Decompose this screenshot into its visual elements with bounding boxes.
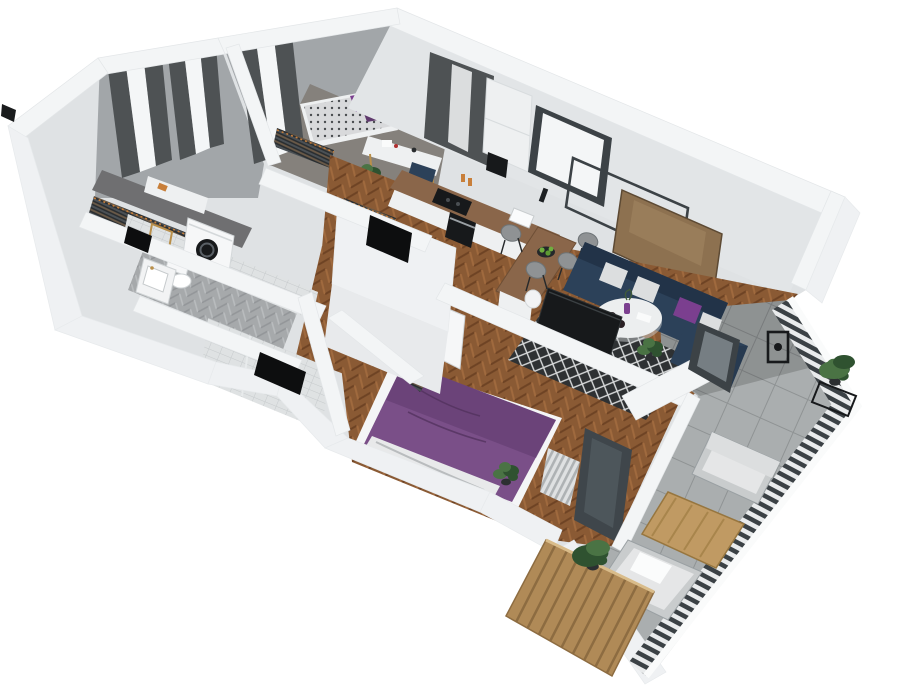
floor-plan-svg [0, 0, 901, 700]
desk-red-item [394, 144, 398, 148]
desk-lamp [412, 148, 417, 153]
juice-glass [461, 174, 465, 182]
gold-faucet [150, 266, 154, 270]
desk-white-box [382, 140, 392, 147]
trash-bin [525, 290, 541, 308]
wall-gap [1, 104, 16, 122]
purple-vase [624, 303, 630, 314]
apartment-3d-render: 3D apartment floor plan render Bedroom 1… [0, 0, 901, 700]
juice-glass-2 [468, 178, 472, 186]
